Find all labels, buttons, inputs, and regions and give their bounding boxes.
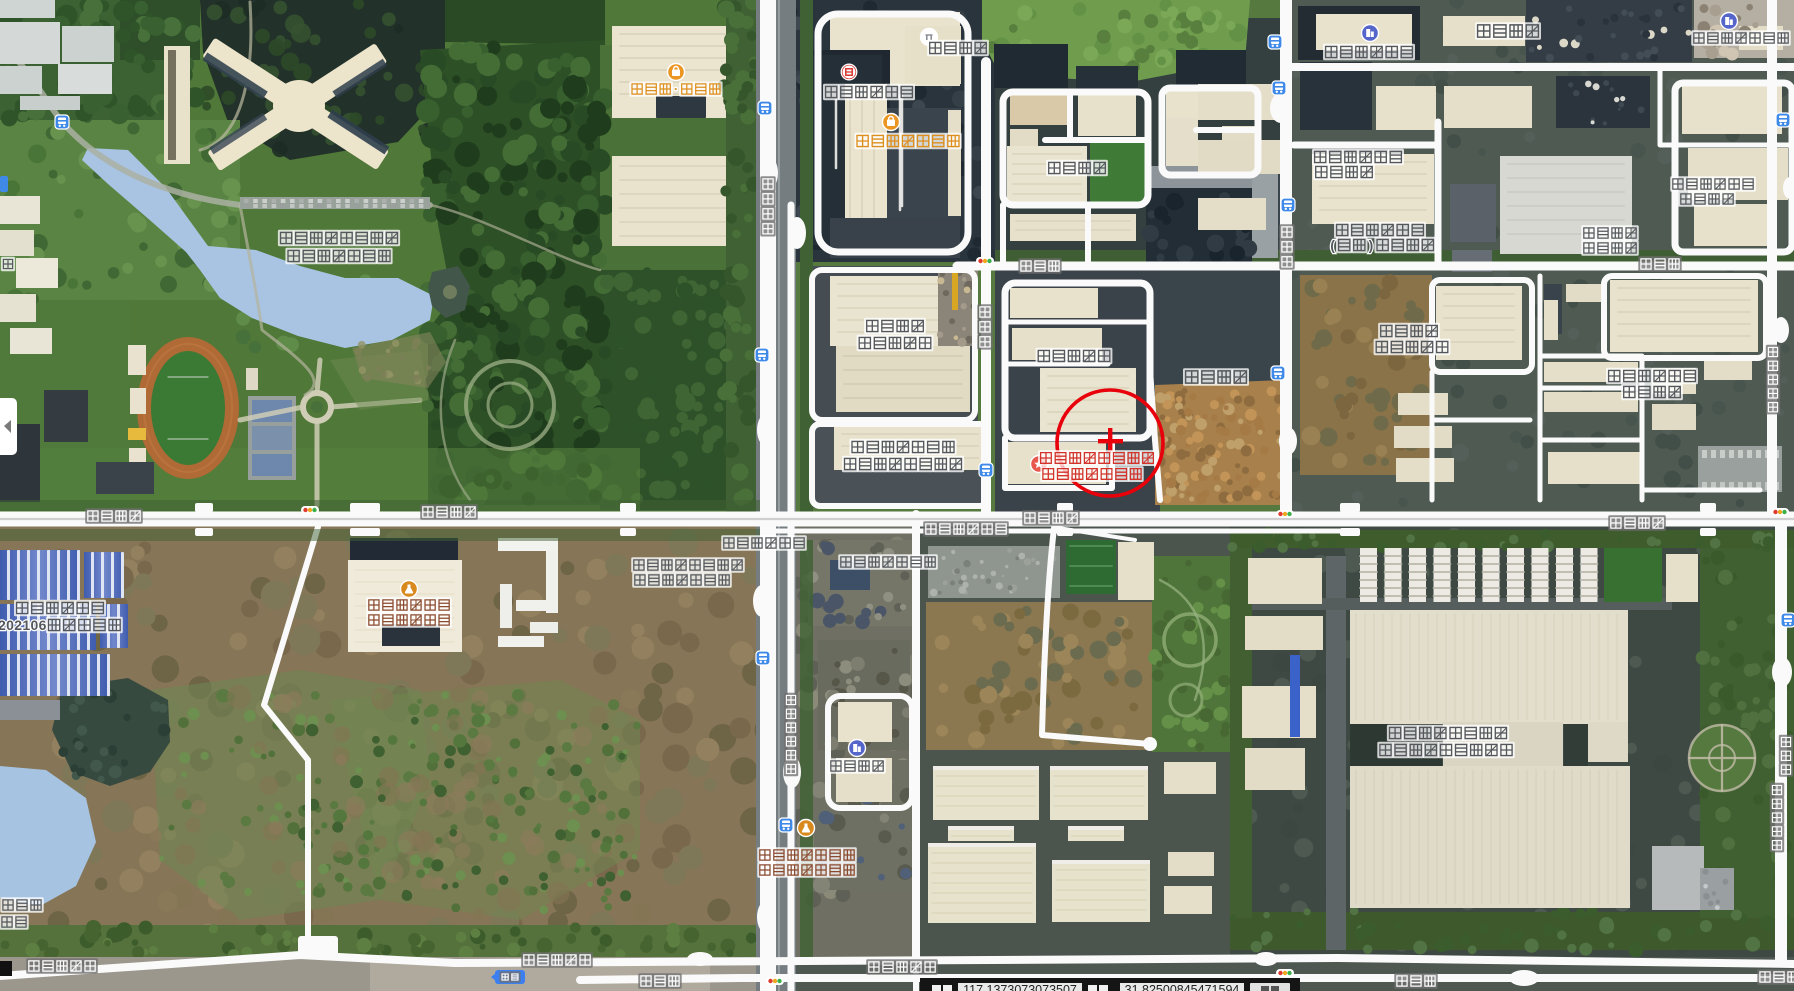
svg-text:·: · [674,82,678,97]
svg-text:0: 0 [6,617,14,633]
svg-text:31.82500845471594: 31.82500845471594 [1125,983,1240,991]
svg-text:6: 6 [39,617,47,633]
svg-text:0: 0 [31,617,39,633]
svg-text:117.1373073073507: 117.1373073073507 [963,983,1077,991]
svg-text:1: 1 [22,617,30,633]
svg-text:2: 2 [0,617,6,633]
svg-text:): ) [1369,237,1374,253]
svg-text:2: 2 [14,617,22,633]
svg-text:(: ( [1330,237,1335,253]
